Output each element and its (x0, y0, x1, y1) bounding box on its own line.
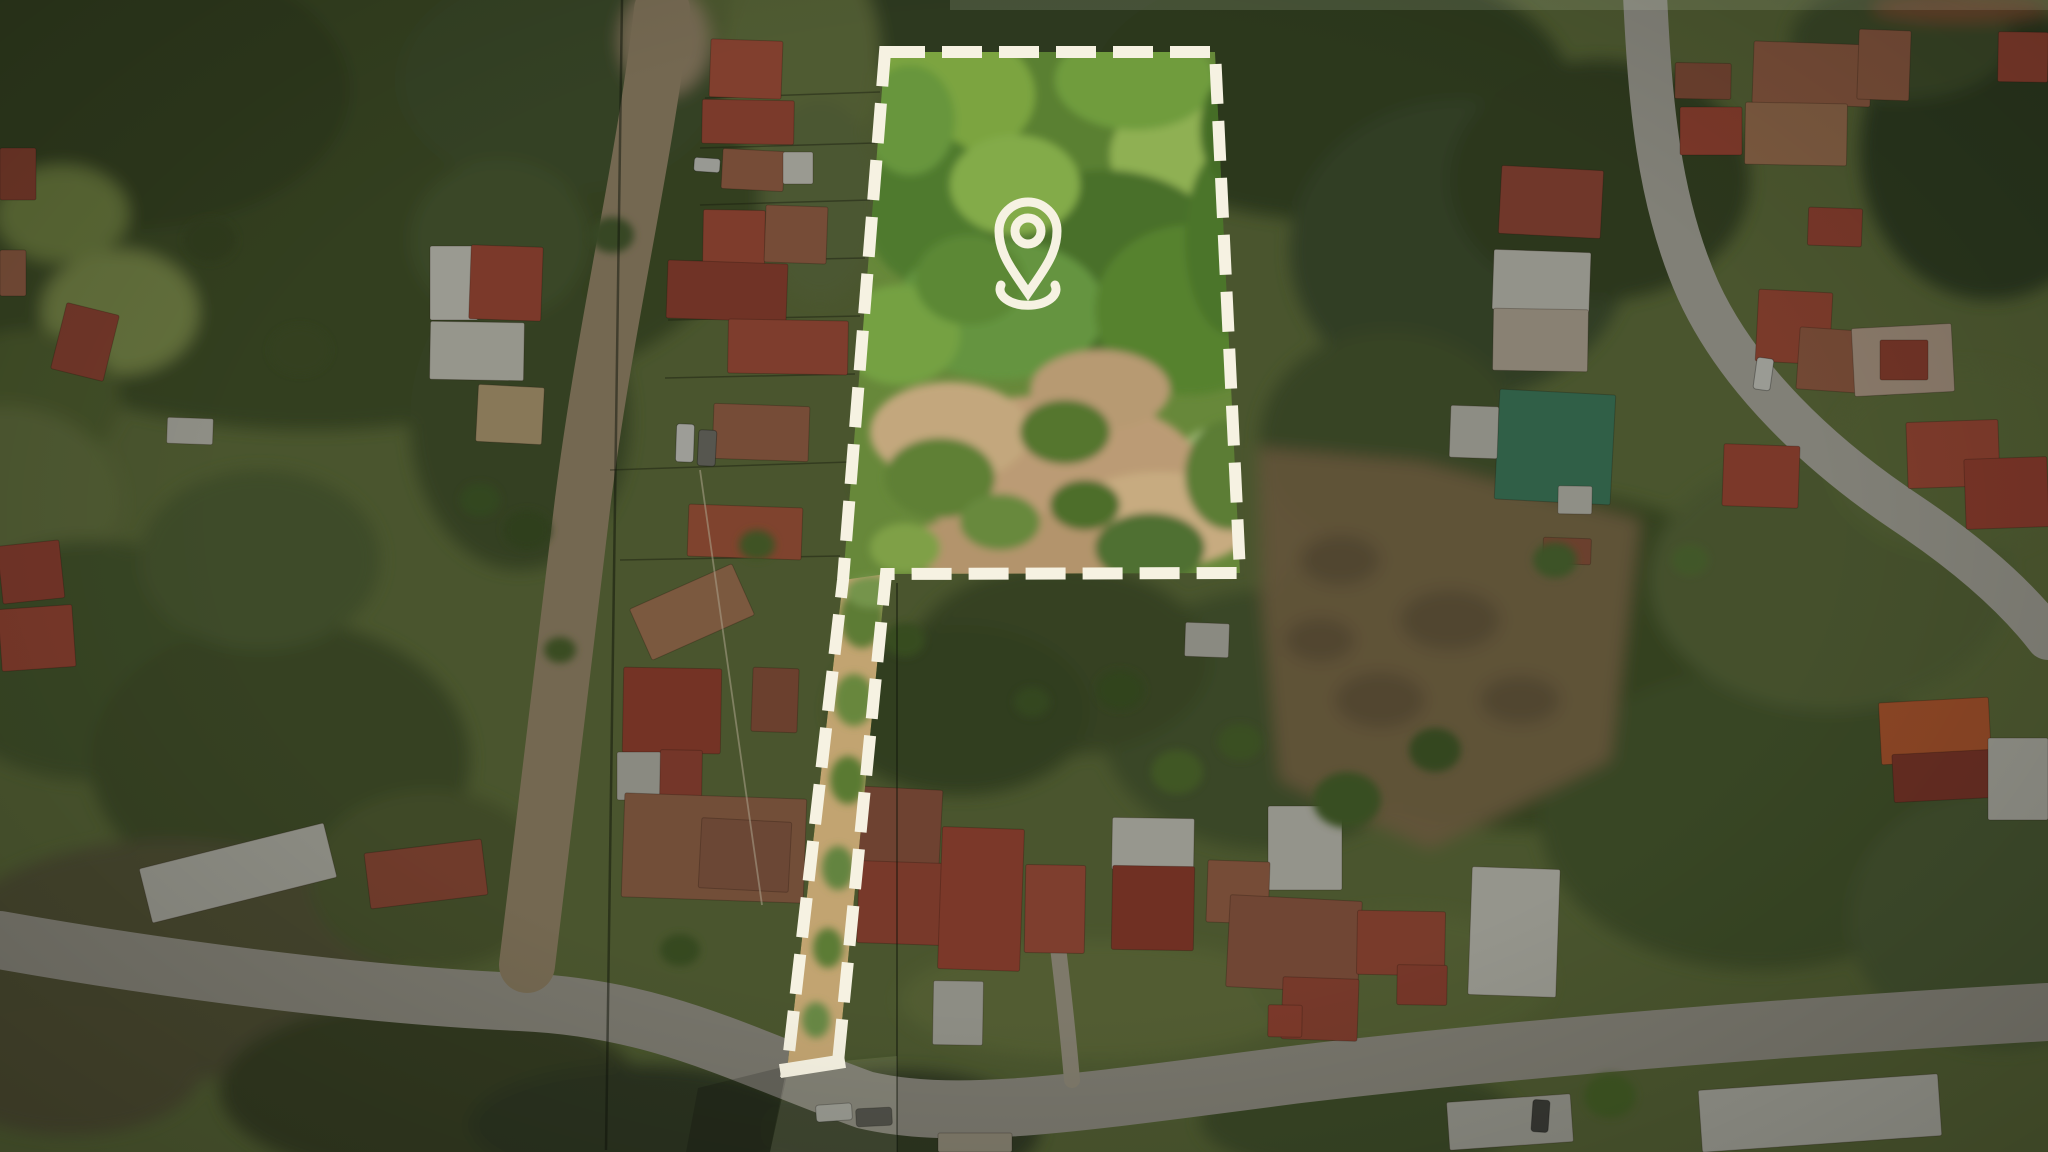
parcel-vegetation-patch (870, 523, 940, 573)
aerial-photo (0, 0, 2048, 1152)
parcel-vegetation-patch (1020, 400, 1110, 464)
parcel-vegetation-patch (802, 1002, 830, 1038)
top-bright-strip (950, 0, 2048, 10)
parcel-vegetation-patch (822, 846, 854, 890)
aerial-photo-scene (0, 0, 2048, 1152)
parcel-vegetation-patch (1050, 480, 1120, 530)
parcel-vegetation-patch (960, 494, 1040, 550)
property-boundary-end-bar (787, 1062, 838, 1070)
parcel-vegetation-patch (813, 928, 843, 968)
parcel-vegetation-patch (915, 235, 1025, 325)
